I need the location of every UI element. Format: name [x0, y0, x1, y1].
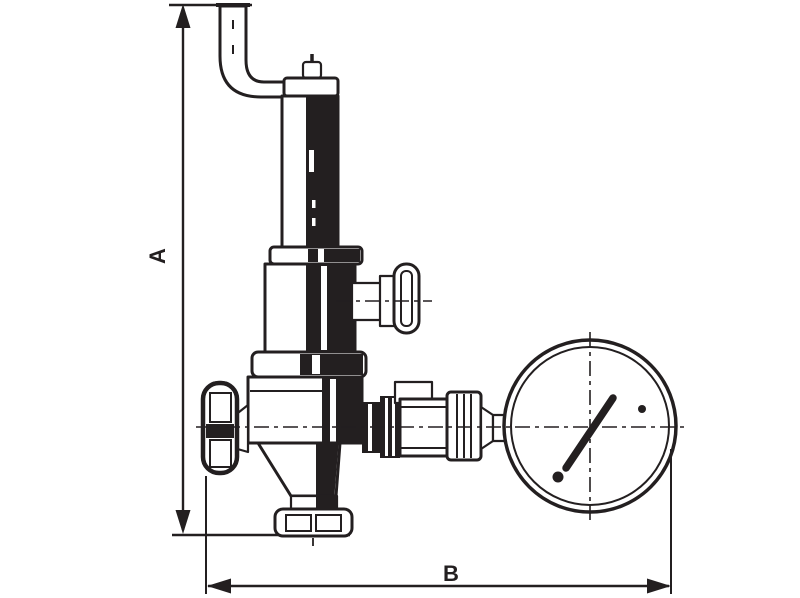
handwheel [203, 383, 237, 473]
technical-drawing-canvas: A B [0, 0, 800, 598]
spring-chamber [252, 264, 366, 377]
bottom-union-fitting [275, 509, 352, 546]
dimension-a-arrow-down [176, 510, 191, 534]
dimension-b-arrow-left [207, 579, 231, 594]
gauge-needle-counterweight [553, 472, 564, 483]
dimension-a-arrow-up [176, 4, 191, 28]
valve-dimension-drawing: A B [0, 0, 800, 598]
dimension-b-label: B [443, 561, 459, 586]
gauge-dial-dot [638, 405, 646, 413]
dimension-b-arrow-right [647, 579, 671, 594]
dimension-a-label: A [145, 248, 170, 264]
outlet-coupling [362, 382, 507, 460]
valve-body [234, 377, 362, 509]
pressure-gauge [504, 332, 676, 520]
discharge-elbow-pipe [216, 5, 291, 97]
adjustment-bonnet [270, 54, 362, 264]
